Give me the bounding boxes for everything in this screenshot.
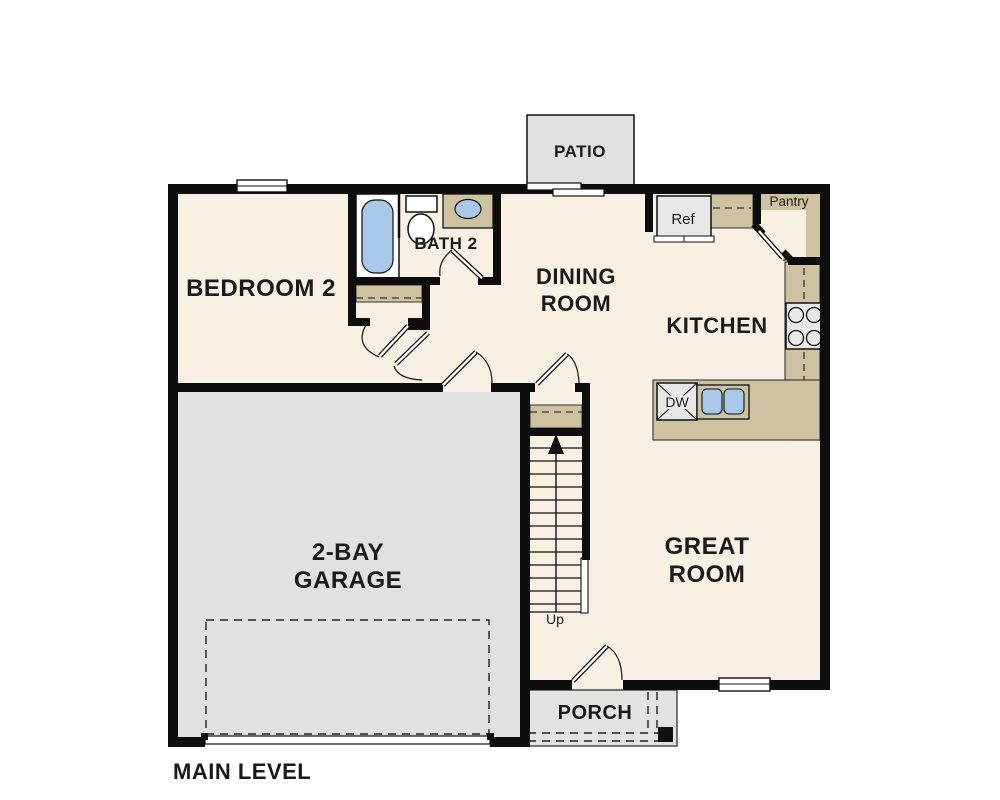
floor-plan-page: BEDROOM 2 BATH 2 DINING ROOM KITCHEN GRE… (0, 0, 1000, 800)
porch-post (658, 727, 673, 742)
pantry-label: Pantry (769, 194, 808, 209)
closet-wall (348, 318, 370, 326)
pantry-wall-bottom (788, 257, 830, 265)
sink-basin-icon (702, 389, 722, 414)
stairs-up-label: Up (546, 611, 564, 627)
garage-wall-top (491, 383, 535, 392)
stair-wall-right (582, 390, 590, 560)
burner-icon (789, 331, 804, 346)
bedroom-closet-shelf (356, 285, 422, 302)
pantry-shelf-side (806, 208, 820, 260)
exterior-wall-front (768, 680, 830, 690)
sink-basin-icon (724, 389, 744, 414)
great-room-label-line1: GREAT (665, 533, 750, 560)
garage-label-line2: GARAGE (294, 567, 402, 594)
garage-label-line1: 2-BAY (312, 539, 384, 566)
bath-sink-icon (455, 200, 481, 219)
patio-label: PATIO (554, 142, 606, 161)
burner-icon (807, 331, 822, 346)
bedroom2-label: BEDROOM 2 (186, 275, 336, 302)
patio-slider-panel (553, 189, 604, 196)
kitchen-label: KITCHEN (666, 313, 767, 338)
floor-plan-drawing: BEDROOM 2 BATH 2 DINING ROOM KITCHEN GRE… (0, 0, 1000, 800)
bathtub-icon (362, 200, 393, 273)
bedroom-bath-wall (348, 194, 356, 325)
bath2-label: BATH 2 (414, 234, 477, 253)
bath-wall-bottom (348, 277, 440, 285)
dishwasher-label: DW (665, 394, 689, 410)
garage-wall-top (168, 383, 443, 392)
plan-title: MAIN LEVEL (173, 759, 311, 784)
garage-wall-bottom (168, 737, 205, 747)
garage-wall-right (520, 383, 530, 747)
exterior-wall-front (530, 680, 572, 690)
dining-label-line2: ROOM (541, 291, 611, 316)
coat-closet-wall (521, 428, 590, 436)
burner-icon (789, 308, 804, 323)
stair-railing (581, 558, 588, 613)
closet-wall-right (422, 285, 430, 330)
porch-label: PORCH (558, 702, 633, 724)
kitchen-wall-stub (645, 194, 653, 232)
coat-closet-shelf (530, 405, 582, 428)
toilet-tank-icon (406, 196, 437, 212)
great-room-label-line2: ROOM (669, 561, 746, 588)
dining-label-line1: DINING (536, 264, 616, 289)
bath-dining-wall (493, 194, 501, 285)
garage-door (205, 736, 490, 744)
pantry-wall-left (753, 194, 761, 224)
burner-icon (807, 308, 822, 323)
exterior-wall-front (623, 680, 722, 690)
refrigerator-label: Ref (671, 211, 695, 228)
kitchen-counter-by-fridge (711, 194, 753, 228)
exterior-wall-left (168, 184, 178, 747)
